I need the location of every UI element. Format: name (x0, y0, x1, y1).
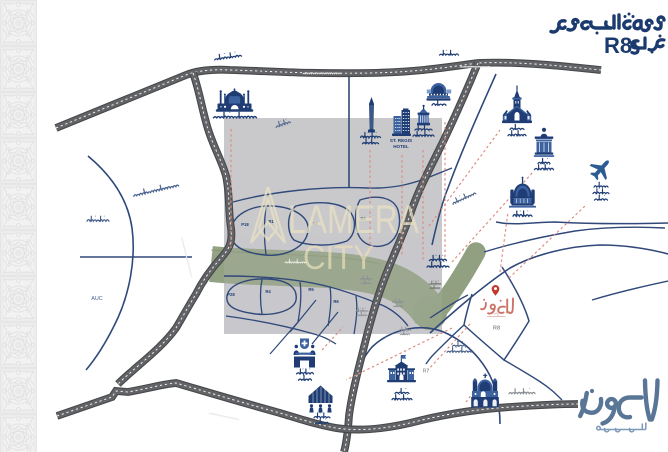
svg-text:HOTEL: HOTEL (393, 144, 409, 149)
svg-text:R6: R6 (333, 299, 339, 304)
svg-text:R4: R4 (265, 289, 271, 294)
svg-text:R5: R5 (308, 287, 314, 292)
svg-text:LAMERA: LAMERA (288, 198, 419, 242)
svg-text:R7: R7 (423, 369, 430, 375)
svg-text:P18: P18 (241, 222, 249, 227)
svg-text:ST. REGIS: ST. REGIS (390, 138, 412, 143)
svg-text:R8: R8 (493, 326, 500, 332)
svg-text:P28: P28 (227, 292, 235, 297)
svg-text:R8: R8 (604, 33, 632, 58)
svg-text:CITY: CITY (303, 239, 374, 277)
svg-text:AUC: AUC (91, 296, 102, 302)
